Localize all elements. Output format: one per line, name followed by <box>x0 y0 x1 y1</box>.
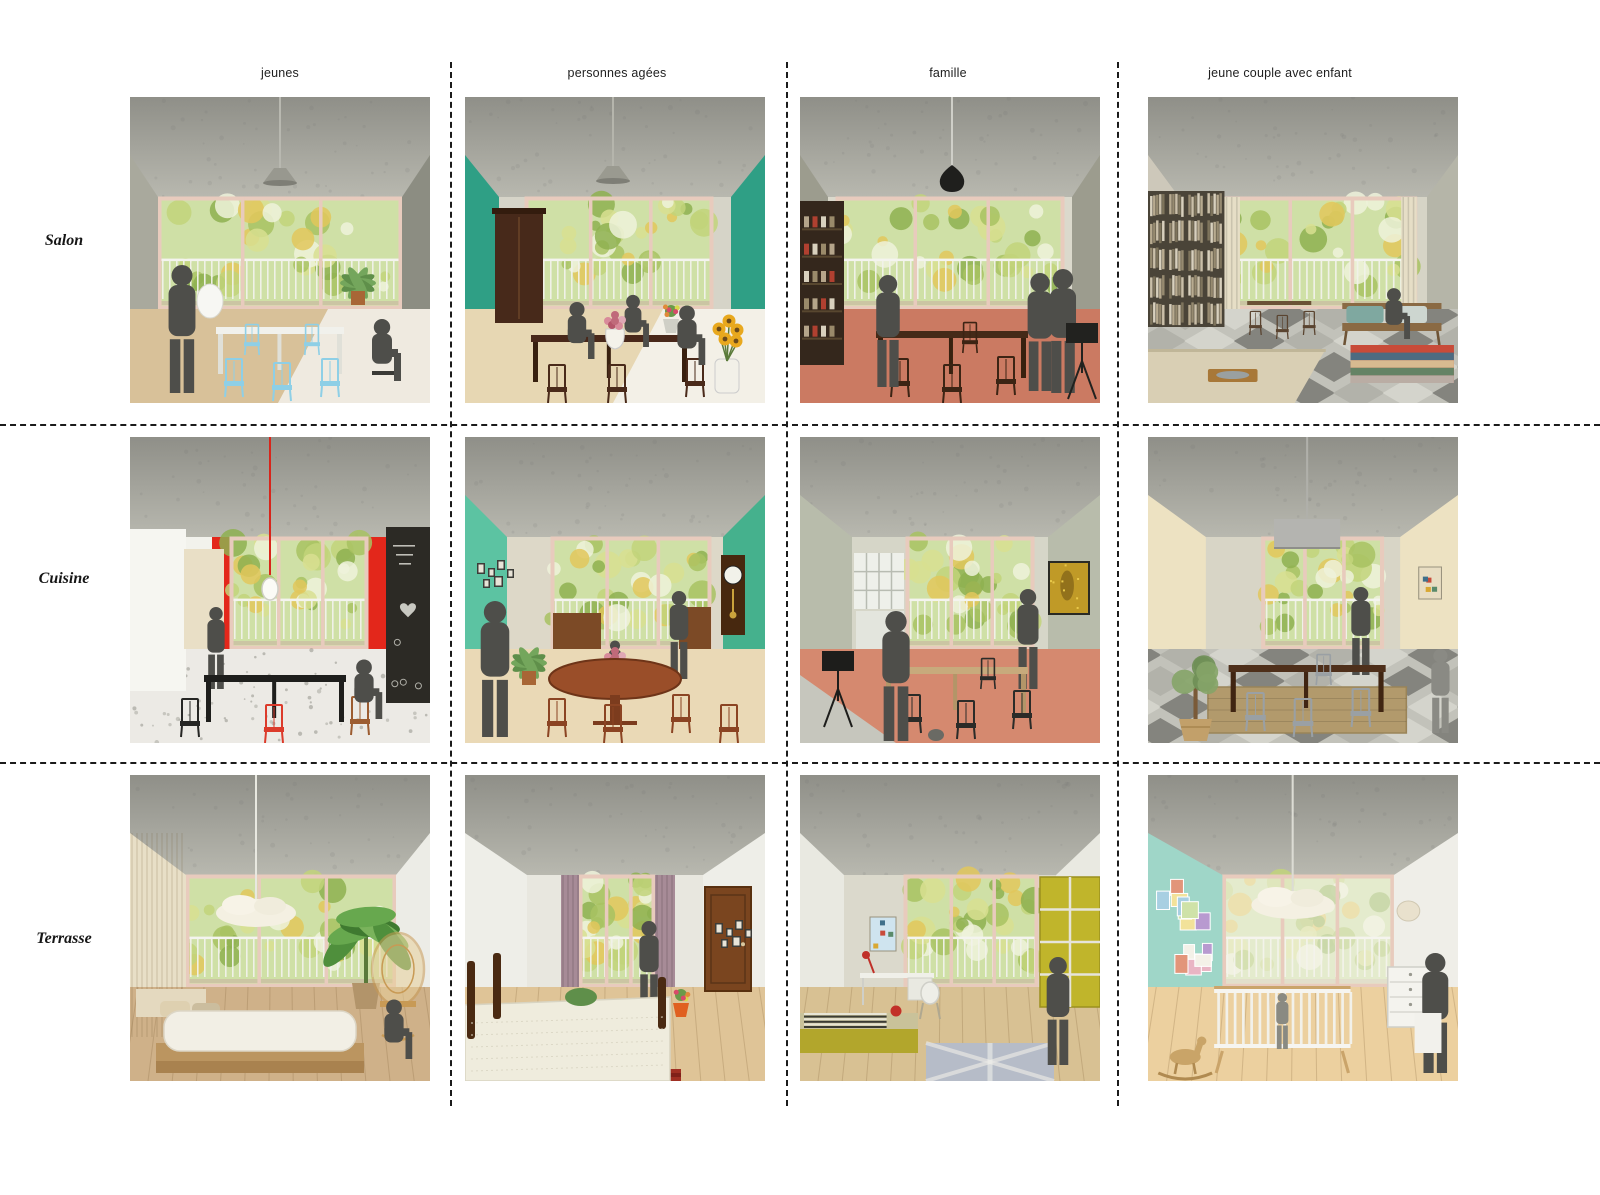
panel-salon-personnes-agees <box>465 97 765 403</box>
column-separator-3 <box>1117 62 1119 1106</box>
column-header-jeunes: jeunes <box>261 66 299 80</box>
panel-cuisine-personnes-agees <box>465 437 765 743</box>
panel-cuisine-jeune-couple <box>1148 437 1458 743</box>
row-separator-2 <box>0 762 1600 764</box>
column-separator-2 <box>786 62 788 1106</box>
panel-terrasse-jeunes <box>130 775 430 1081</box>
panel-salon-jeune-couple <box>1148 97 1458 403</box>
column-header-personnes-agees: personnes agées <box>568 66 667 80</box>
panel-terrasse-jeune-couple <box>1148 775 1458 1081</box>
panel-cuisine-famille <box>800 437 1100 743</box>
row-separator-1 <box>0 424 1600 426</box>
presentation-board: jeunes personnes agées famille jeune cou… <box>0 0 1600 1195</box>
column-separator-1 <box>450 62 452 1106</box>
panel-salon-famille <box>800 97 1100 403</box>
row-header-salon: Salon <box>0 232 128 250</box>
panel-terrasse-personnes-agees <box>465 775 765 1081</box>
panel-terrasse-famille <box>800 775 1100 1081</box>
row-header-cuisine: Cuisine <box>0 570 128 588</box>
column-header-famille: famille <box>929 66 967 80</box>
row-header-terrasse: Terrasse <box>0 930 128 948</box>
panel-salon-jeunes <box>130 97 430 403</box>
column-header-jeune-couple: jeune couple avec enfant <box>1208 66 1352 80</box>
panel-cuisine-jeunes <box>130 437 430 743</box>
